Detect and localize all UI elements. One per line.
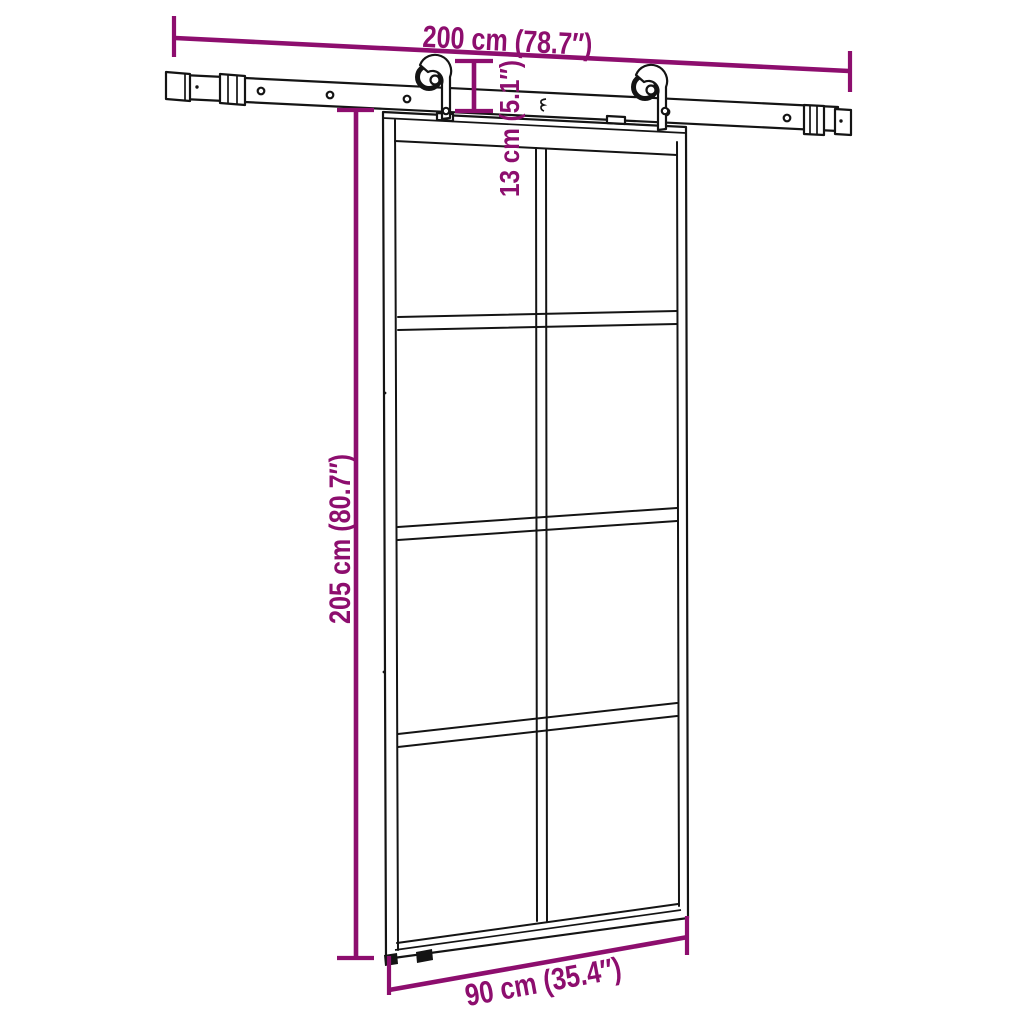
rail-right-end-cap bbox=[835, 109, 851, 135]
screw-dot bbox=[384, 392, 387, 395]
anti-jump-block bbox=[607, 116, 625, 124]
door-mullion-line bbox=[536, 148, 537, 921]
rail-screw-dot bbox=[839, 119, 842, 122]
rail-left-bracket bbox=[220, 74, 245, 105]
door-mullion-line bbox=[546, 149, 547, 922]
door-width-label: 90 cm (35.4″) bbox=[462, 950, 624, 1013]
sliding-door bbox=[383, 112, 688, 966]
hanger-hub-bolt bbox=[647, 86, 656, 95]
rail-screw-hole bbox=[784, 115, 791, 122]
hardware-height-label: 13 cm (5.1″) bbox=[494, 60, 525, 197]
hanger-screw bbox=[662, 108, 668, 114]
rail-screw-hole bbox=[404, 96, 411, 103]
rail-screw-hole bbox=[327, 92, 334, 99]
dimension-door-height: 205 cm (80.7″) bbox=[324, 110, 374, 958]
rail-screw-hole bbox=[258, 88, 265, 95]
rail-right-bracket bbox=[804, 105, 824, 135]
rail-width-label: 200 cm (78.7″) bbox=[422, 19, 594, 62]
door-height-label: 205 cm (80.7″) bbox=[324, 454, 357, 624]
hanger-screw bbox=[443, 108, 449, 114]
screw-dot bbox=[383, 671, 386, 674]
hanger-hub-bolt bbox=[431, 76, 440, 85]
rail-screw-dot bbox=[195, 85, 198, 88]
rail-left-end-cap bbox=[166, 72, 190, 101]
product-dimension-diagram: 200 cm (78.7″) 13 cm (5.1″) 205 cm (80.7… bbox=[0, 0, 1024, 1024]
